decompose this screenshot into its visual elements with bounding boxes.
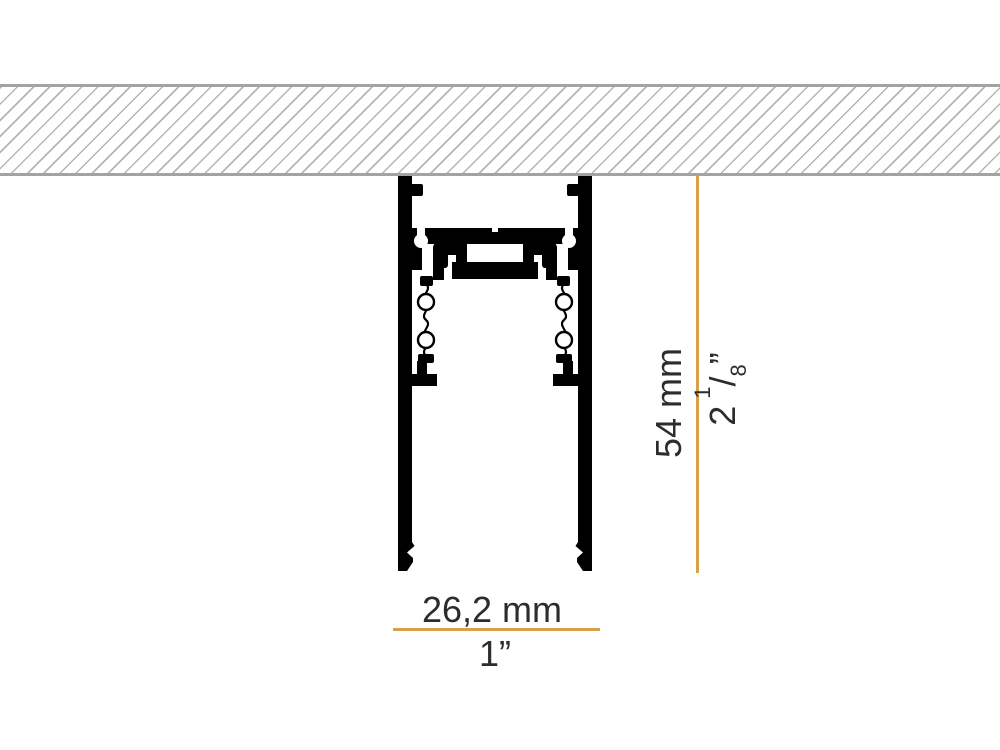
- width-inch-label: 1”: [479, 636, 511, 672]
- technical-drawing-canvas: 54 mm 21/8” 26,2 mm 1”: [0, 0, 1000, 750]
- height-inch-unit: ”: [702, 352, 743, 364]
- height-inch-denominator: 8: [726, 364, 751, 376]
- height-inch-slash: /: [702, 376, 743, 386]
- shelf-center-notch: [492, 228, 498, 232]
- height-inch-numerator: 1: [690, 386, 715, 398]
- height-dimension-line: [696, 176, 699, 573]
- height-mm-label: 54 mm: [651, 348, 687, 458]
- height-inch-whole: 2: [702, 406, 743, 426]
- height-inch-label: 21/8”: [705, 352, 741, 426]
- width-mm-label: 26,2 mm: [422, 592, 562, 628]
